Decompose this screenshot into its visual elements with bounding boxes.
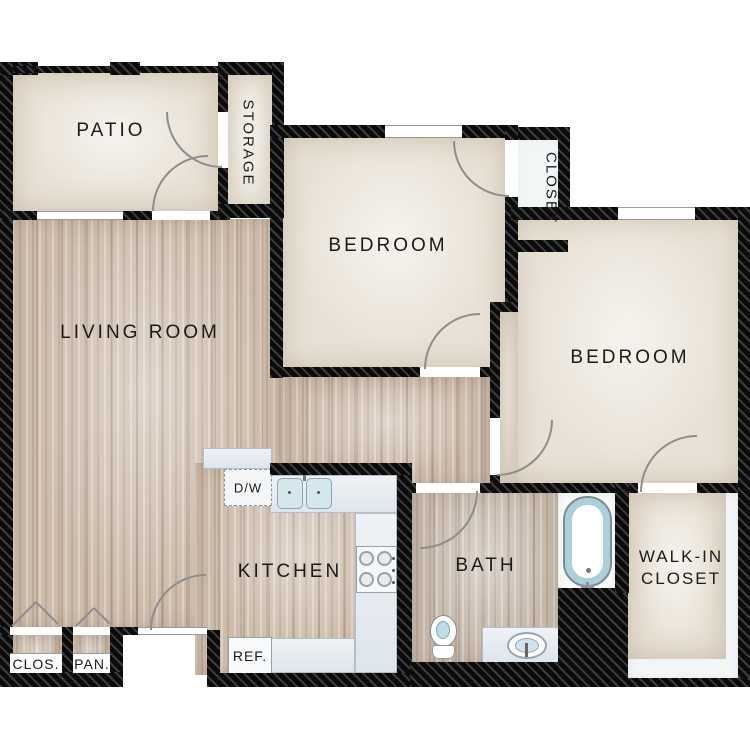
wall-kitchen-bath-divider — [397, 463, 412, 687]
wall-outer-left — [0, 62, 13, 687]
wall-storage-left — [218, 75, 228, 114]
wall-tub-bottom — [558, 588, 628, 687]
pan-door-opening — [73, 627, 110, 635]
wall-walkin-bottom — [627, 678, 750, 687]
room-label-clos: CLOS. — [12, 656, 59, 672]
burner-icon — [377, 572, 392, 587]
drain — [317, 491, 320, 494]
faucet-icon — [303, 475, 306, 481]
bath-sink — [507, 632, 549, 660]
tub-drain — [586, 568, 591, 573]
room-label-bath: BATH — [455, 555, 516, 577]
stove-knob — [392, 569, 395, 572]
burner-icon — [359, 551, 374, 566]
kitchen-bar-counter — [203, 448, 272, 469]
toilet-tank — [432, 645, 455, 659]
room-label-walk-in-closet: WALK-IN CLOSET — [616, 546, 746, 590]
toilet-seat — [436, 621, 450, 639]
bedroom1-window — [385, 125, 462, 138]
room-label-storage: STORAGE — [240, 99, 257, 186]
walk-in-label-line2: CLOSET — [616, 568, 746, 590]
wall-patio-rail — [140, 66, 218, 73]
room-label-kitchen: KITCHEN — [238, 561, 342, 583]
bedroom2-window — [618, 207, 695, 220]
burner-icon — [359, 572, 374, 587]
wall-bath-bottom — [410, 662, 562, 687]
stove-knob — [392, 557, 395, 560]
wall-kitchen-bottom — [207, 673, 412, 687]
wall-entry-right — [207, 630, 220, 687]
room-label-bedroom-1: BEDROOM — [328, 235, 447, 257]
room-label-living-room: LIVING ROOM — [60, 322, 220, 344]
kitchen-counter-right — [355, 513, 397, 673]
wall-clos-pan-divider — [62, 627, 73, 674]
room-label-closet: CLOSET — [543, 152, 560, 224]
walk-in-label-line1: WALK-IN — [616, 546, 746, 568]
wall-bedroom2-left — [490, 310, 500, 420]
room-label-pan: PAN. — [74, 656, 110, 672]
bathtub — [563, 496, 612, 587]
toilet — [429, 615, 459, 662]
room-label-bedroom-2: BEDROOM — [570, 347, 689, 369]
patio-window — [37, 211, 123, 220]
wall-outer-bottom-left — [0, 672, 123, 687]
drain — [288, 491, 291, 494]
stove — [356, 546, 397, 593]
kitchen-counter-bottom — [270, 638, 355, 673]
patio-door-opening — [152, 211, 210, 220]
burner-icon — [377, 551, 392, 566]
kitchen-sink — [276, 474, 334, 512]
fixture-label-dishwasher: D/W — [234, 481, 262, 496]
wall-patio-post — [110, 62, 140, 75]
wall-pan-right — [110, 627, 123, 674]
wall-kitchen-top — [270, 463, 412, 475]
floor-plan: PATIO STORAGE BEDROOM CLOSET BEDROOM LIV… — [0, 0, 750, 750]
wall-bedroom2-bottom — [490, 483, 738, 493]
faucet-icon — [525, 643, 528, 657]
fixture-label-refrigerator: REF. — [233, 648, 267, 664]
wall-bedroom1-left — [270, 138, 283, 378]
clos-door-opening — [10, 627, 62, 635]
wall-outer-right — [738, 207, 750, 687]
stove-knob — [392, 581, 395, 584]
wall-patio-rail — [13, 66, 110, 73]
wall-closet-bottom — [505, 240, 568, 252]
room-label-patio: PATIO — [76, 120, 145, 142]
